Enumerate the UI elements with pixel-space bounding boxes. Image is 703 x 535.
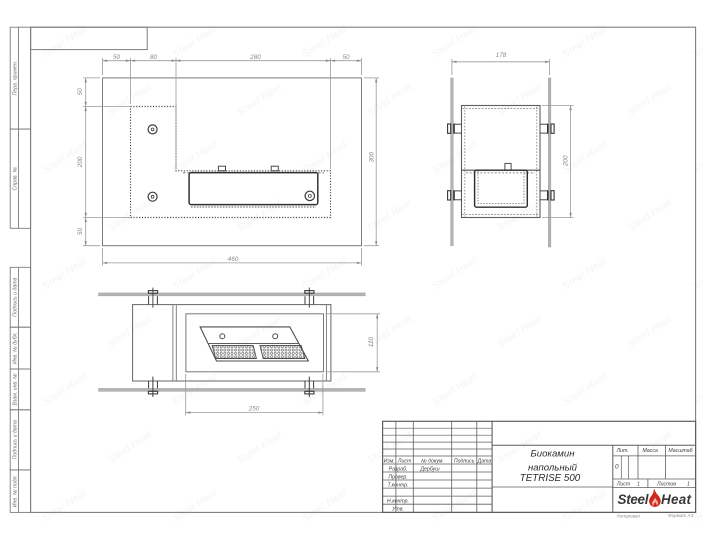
svg-text:Steel Heat: Steel Heat — [105, 429, 155, 467]
svg-text:200: 200 — [563, 155, 570, 167]
svg-text:Копировал: Копировал — [617, 514, 640, 519]
svg-text:Steel Heat: Steel Heat — [430, 255, 480, 293]
svg-text:Steel Heat: Steel Heat — [105, 313, 155, 351]
svg-text:Steel Heat: Steel Heat — [690, 487, 703, 525]
svg-text:Steel Heat: Steel Heat — [300, 487, 350, 525]
svg-text:Масса: Масса — [643, 448, 658, 454]
svg-text:Формат А3: Формат А3 — [668, 513, 694, 518]
svg-text:Steel Heat: Steel Heat — [430, 23, 480, 61]
svg-text:Steel Heat: Steel Heat — [105, 197, 155, 235]
svg-text:1: 1 — [637, 482, 640, 488]
svg-text:Steel Heat: Steel Heat — [40, 23, 90, 61]
svg-text:Steel Heat: Steel Heat — [365, 197, 415, 235]
svg-text:Подпись и дата: Подпись и дата — [13, 277, 19, 316]
svg-text:Биокамин: Биокамин — [531, 449, 576, 460]
svg-text:напольный: напольный — [528, 462, 578, 473]
svg-text:Steel Heat: Steel Heat — [430, 487, 480, 525]
svg-text:110: 110 — [368, 336, 375, 347]
svg-text:Steel Heat: Steel Heat — [40, 487, 90, 525]
svg-text:Подпись: Подпись — [454, 458, 475, 464]
svg-text:Перв. примен.: Перв. примен. — [13, 61, 19, 95]
svg-text:250: 250 — [248, 405, 260, 412]
svg-text:Масштаб: Масштаб — [668, 448, 693, 454]
svg-text:Steel Heat: Steel Heat — [495, 429, 545, 467]
svg-text:Steel Heat: Steel Heat — [625, 81, 675, 119]
svg-text:Справ. №: Справ. № — [13, 167, 19, 191]
svg-text:Steel Heat: Steel Heat — [560, 371, 610, 409]
svg-text:Steel Heat: Steel Heat — [170, 255, 220, 293]
svg-text:Steel Heat: Steel Heat — [560, 23, 610, 61]
svg-text:№ докум.: № докум. — [421, 458, 444, 464]
svg-text:Steel Heat: Steel Heat — [105, 81, 155, 119]
svg-text:Утв.: Утв. — [392, 507, 404, 513]
svg-text:Steel Heat: Steel Heat — [235, 81, 285, 119]
svg-text:Н.контр.: Н.контр. — [387, 499, 409, 505]
svg-text:Подпись и дата: Подпись и дата — [13, 420, 19, 459]
svg-text:Steel Heat: Steel Heat — [300, 255, 350, 293]
svg-text:Steel Heat: Steel Heat — [690, 23, 703, 61]
svg-text:Дата: Дата — [477, 458, 492, 464]
svg-text:Лист: Лист — [397, 458, 412, 464]
svg-text:50: 50 — [113, 54, 121, 61]
svg-text:Разраб.: Разраб. — [389, 466, 408, 472]
svg-text:Провер.: Провер. — [388, 474, 407, 480]
svg-text:280: 280 — [249, 54, 261, 61]
svg-text:Листов: Листов — [656, 482, 676, 488]
svg-text:Лист: Лист — [616, 482, 631, 488]
svg-text:Steel Heat: Steel Heat — [625, 313, 675, 351]
svg-text:Steel Heat: Steel Heat — [365, 81, 415, 119]
svg-text:178: 178 — [496, 52, 507, 59]
svg-text:200: 200 — [77, 156, 84, 168]
svg-text:Steel Heat: Steel Heat — [430, 139, 480, 177]
svg-text:Steel Heat: Steel Heat — [430, 371, 480, 409]
svg-text:Steel Heat: Steel Heat — [235, 313, 285, 351]
svg-text:300: 300 — [369, 152, 376, 163]
svg-text:Steel Heat: Steel Heat — [235, 197, 285, 235]
svg-text:Взам. инв. №: Взам. инв. № — [13, 373, 19, 405]
svg-text:Инв. № дубл.: Инв. № дубл. — [13, 332, 19, 364]
svg-text:0: 0 — [615, 463, 619, 470]
svg-text:Лит.: Лит. — [616, 448, 629, 454]
svg-text:1: 1 — [687, 482, 690, 488]
svg-text:Steel: Steel — [618, 492, 649, 507]
svg-text:Инв. № подл.: Инв. № подл. — [13, 475, 19, 507]
svg-text:Steel Heat: Steel Heat — [40, 255, 90, 293]
svg-text:Steel Heat: Steel Heat — [235, 429, 285, 467]
svg-text:Steel Heat: Steel Heat — [170, 487, 220, 525]
svg-text:Дербуш: Дербуш — [419, 466, 440, 472]
svg-text:Steel Heat: Steel Heat — [560, 487, 610, 525]
svg-text:Т.контр.: Т.контр. — [388, 483, 409, 489]
svg-text:Steel Heat: Steel Heat — [560, 255, 610, 293]
svg-text:Изм.: Изм. — [384, 458, 395, 464]
svg-text:Steel Heat: Steel Heat — [170, 23, 220, 61]
svg-text:50: 50 — [77, 228, 84, 236]
svg-text:Steel Heat: Steel Heat — [625, 197, 675, 235]
svg-text:Steel Heat: Steel Heat — [690, 371, 703, 409]
svg-text:50: 50 — [77, 88, 84, 96]
svg-text:Steel Heat: Steel Heat — [690, 139, 703, 177]
svg-text:460: 460 — [228, 256, 239, 263]
svg-text:50: 50 — [342, 54, 350, 61]
svg-text:Heat: Heat — [661, 492, 692, 507]
svg-text:Steel Heat: Steel Heat — [495, 313, 545, 351]
svg-text:80: 80 — [150, 54, 158, 61]
svg-text:Steel Heat: Steel Heat — [40, 371, 90, 409]
svg-text:Steel Heat: Steel Heat — [495, 197, 545, 235]
svg-text:TETRISE 500: TETRISE 500 — [520, 473, 581, 484]
svg-text:Steel Heat: Steel Heat — [495, 81, 545, 119]
svg-text:Steel Heat: Steel Heat — [690, 255, 703, 293]
